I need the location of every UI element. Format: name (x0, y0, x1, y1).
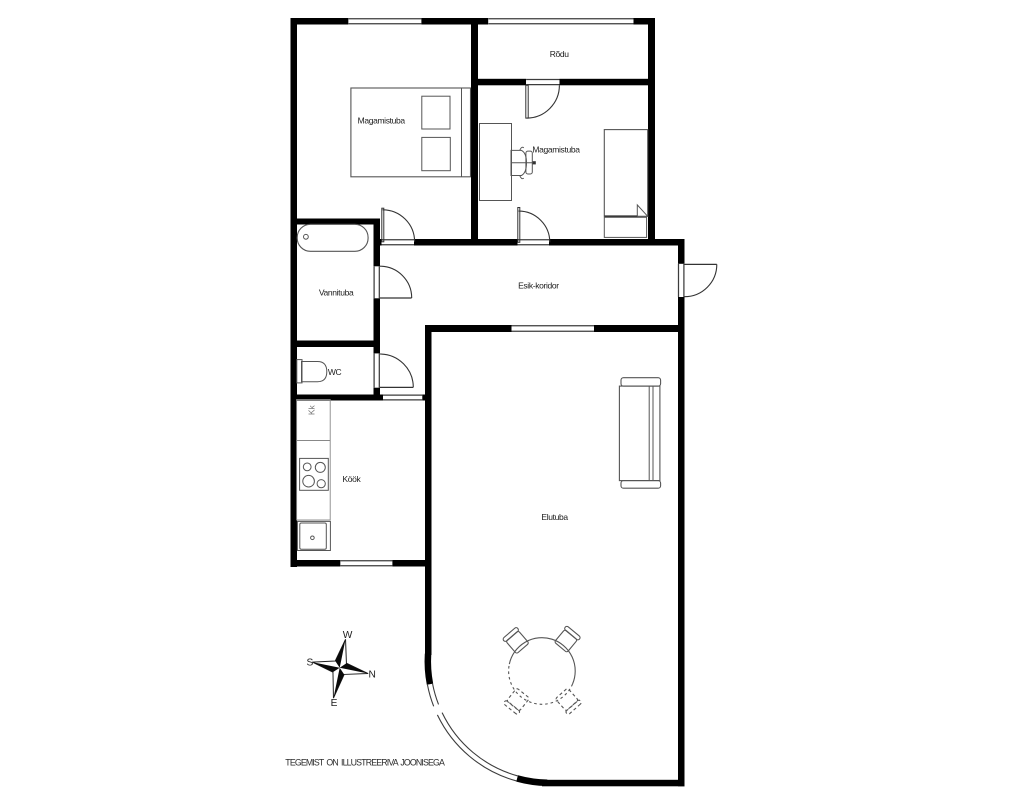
svg-text:S: S (307, 657, 314, 668)
svg-text:Kk: Kk (307, 404, 317, 415)
svg-text:Magamistuba: Magamistuba (532, 145, 580, 155)
svg-text:E: E (331, 698, 338, 709)
svg-text:Rõdu: Rõdu (550, 49, 570, 59)
svg-text:Magamistuba: Magamistuba (358, 115, 406, 125)
svg-text:WC: WC (328, 367, 342, 377)
svg-text:Esik-koridor: Esik-koridor (518, 280, 559, 290)
svg-text:W: W (343, 630, 353, 641)
svg-text:TEGEMIST ON ILLUSTREERIVA JOON: TEGEMIST ON ILLUSTREERIVA JOONISEGA (285, 757, 445, 767)
svg-text:N: N (369, 670, 376, 681)
svg-text:Vannituba: Vannituba (319, 287, 354, 297)
svg-text:Elutuba: Elutuba (541, 512, 568, 522)
svg-text:Köök: Köök (342, 474, 361, 484)
